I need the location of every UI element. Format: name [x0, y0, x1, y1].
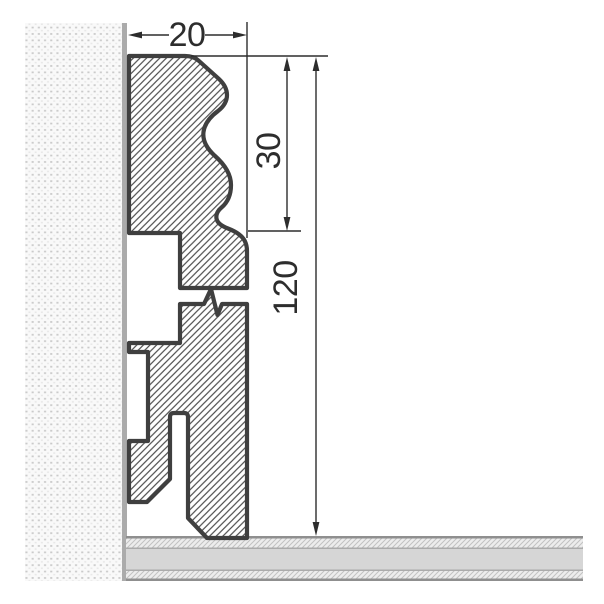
floor-top-border [126, 536, 583, 539]
floor-bottom-border [126, 579, 583, 582]
floor-upper-hatch-band [126, 539, 583, 548]
wall-surface-strip [122, 23, 127, 581]
floor-core-band [126, 549, 583, 570]
dim-width-label: 20 [169, 16, 206, 54]
skirting-profile-drawing: 20 30 120 [0, 0, 604, 604]
floor [126, 536, 583, 581]
dim-total-height-arrow-bottom [313, 522, 320, 536]
wall [25, 23, 127, 581]
technical-drawing-canvas: 20 30 120 [0, 0, 604, 604]
floor-divider-upper [126, 548, 583, 550]
skirting-upper-section [129, 56, 247, 288]
dim-upper-height: 30 [250, 57, 290, 231]
dim-total-height: 120 [267, 57, 319, 536]
dim-width: 20 [128, 16, 247, 54]
dim-total-height-arrow-top [313, 57, 320, 71]
dim-width-arrow-right [233, 32, 247, 39]
wall-texture [25, 23, 122, 581]
dim-upper-height-label: 30 [250, 133, 288, 170]
dim-upper-height-arrow-bottom [284, 217, 291, 231]
floor-divider-lower [126, 570, 583, 572]
skirting-lower-section [129, 289, 247, 538]
floor-lower-hatch-band [126, 571, 583, 579]
dim-width-arrow-left [128, 32, 142, 39]
dim-upper-height-arrow-top [284, 57, 291, 71]
dim-total-height-label: 120 [267, 260, 305, 315]
